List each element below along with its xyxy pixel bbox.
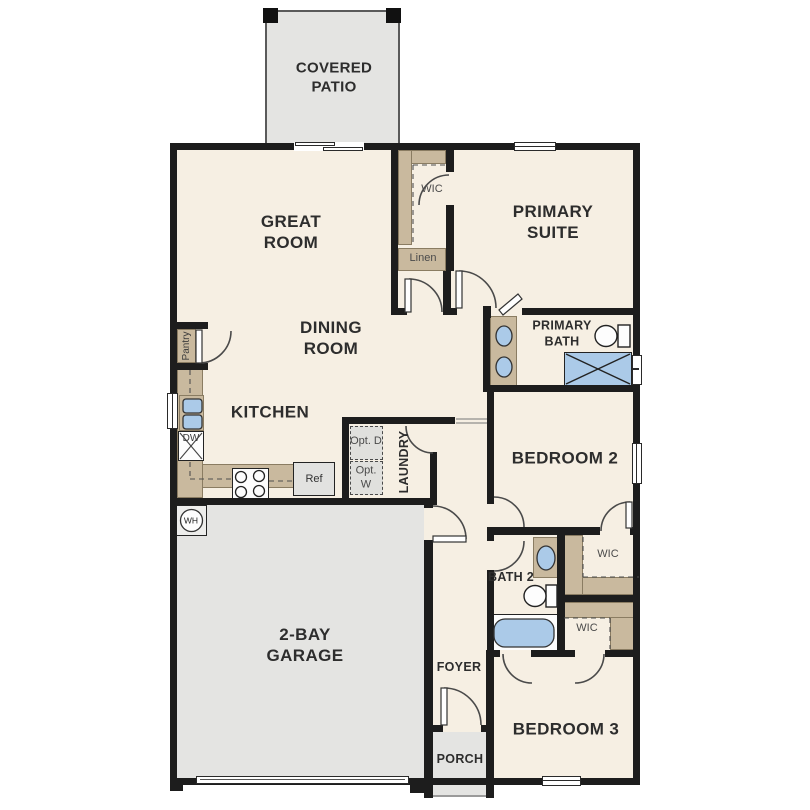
wall-frontdoor-stub-right: [481, 725, 494, 732]
door-opening-wic3: [575, 650, 605, 657]
wall-bedroom3-porch: [486, 650, 494, 798]
label-laundry: LAUNDRY: [397, 431, 413, 494]
label-great-room: GREAT ROOM: [236, 211, 346, 254]
label-pantry: Pantry: [181, 332, 194, 361]
door-opening-bath2: [487, 541, 494, 570]
label-kitchen: KITCHEN: [231, 401, 309, 422]
door-opening-bedroom3: [500, 650, 531, 657]
wall-primarybath-south: [483, 385, 640, 392]
primary-wic-shelf-left: [398, 150, 412, 245]
label-porch: PORCH: [437, 752, 484, 768]
wall-suite-south-right: [522, 308, 640, 315]
door-opening-laundry: [430, 424, 437, 452]
wall-frontdoor-stub-left: [433, 725, 443, 732]
label-refrigerator: Ref: [305, 473, 322, 487]
window-bedroom2-mullion: [636, 444, 637, 483]
label-opt-dryer: Opt. D: [349, 435, 383, 449]
window-bedroom3-mullion: [543, 780, 580, 781]
label-garage: 2-BAY GARAGE: [245, 624, 365, 667]
patio-slider-panel-2: [323, 147, 363, 151]
label-bedroom-3: BEDROOM 3: [513, 718, 620, 739]
primary-bath-vanity: [490, 316, 517, 390]
porch-edge-line: [433, 795, 486, 797]
door-opening-bedroom2: [487, 504, 494, 527]
door-opening-garage-entry: [424, 508, 433, 540]
label-dishwasher: DW: [183, 433, 200, 446]
door-opening-primary-wic: [446, 172, 454, 205]
window-primary-suite-mullion: [515, 146, 555, 147]
range-box: [232, 468, 269, 499]
garage-corner-step-left: [170, 778, 183, 791]
door-opening-wic2: [600, 527, 630, 535]
label-linen: Linen: [410, 252, 437, 266]
wall-exterior-left: [170, 143, 177, 785]
patio-post-right: [386, 8, 401, 23]
wall-bedroom2-left: [487, 392, 494, 504]
bath2-vanity: [533, 537, 559, 578]
patio-post-left: [263, 8, 278, 23]
label-primary-suite: PRIMARY SUITE: [488, 201, 618, 244]
wall-exterior-top: [170, 143, 640, 150]
patio-slider-panel-1: [295, 142, 335, 146]
shower-pan: [564, 352, 632, 386]
wall-kitchen-garage: [170, 498, 437, 505]
floor-plan: COVERED PATIO GREAT ROOM PRIMARY SUITE W…: [0, 0, 810, 810]
wic2-shelf-left: [563, 535, 583, 595]
label-bath-2: BATH 2: [488, 570, 534, 586]
wall-pantry-top: [170, 322, 208, 329]
wall-wic2-wic3-divider: [557, 595, 640, 602]
wall-laundry-left: [342, 417, 349, 505]
label-wic-bedroom3: WIC: [576, 622, 597, 636]
shower-door-gap: [632, 355, 642, 385]
wic2-shelf-bottom: [582, 577, 640, 595]
label-primary-wic: WIC: [421, 183, 442, 197]
kitchen-sink-base: [179, 395, 204, 431]
wall-pantry-bottom: [170, 363, 208, 370]
label-water-heater: WH: [184, 516, 198, 527]
wic3-shelf-top: [563, 602, 640, 618]
label-opt-washer: Opt. W: [349, 464, 383, 492]
garage-door-opening: [196, 776, 409, 784]
wall-greatroom-wic: [391, 150, 398, 315]
wall-primarybath-left: [483, 312, 490, 392]
label-primary-bath: PRIMARY BATH: [518, 318, 606, 349]
wall-wic-suite: [446, 150, 454, 271]
door-opening-vestibule: [407, 308, 443, 315]
label-covered-patio: COVERED PATIO: [284, 59, 384, 97]
primary-wic-shelf-top: [411, 150, 446, 164]
label-dining-room: DINING ROOM: [276, 317, 386, 360]
window-kitchen-mullion: [172, 394, 173, 428]
shower-door-tick: [633, 368, 639, 370]
label-foyer: FOYER: [437, 660, 482, 676]
window-bedroom3: [542, 776, 581, 786]
tub-frame: [490, 614, 559, 652]
label-bedroom-2: BEDROOM 2: [512, 447, 619, 468]
garage-door-track-line: [200, 779, 405, 780]
wall-laundry-top: [342, 417, 455, 424]
window-bedroom2: [632, 443, 642, 484]
wall-garage-foyer: [424, 505, 433, 798]
label-wic-bedroom2: WIC: [597, 548, 618, 562]
